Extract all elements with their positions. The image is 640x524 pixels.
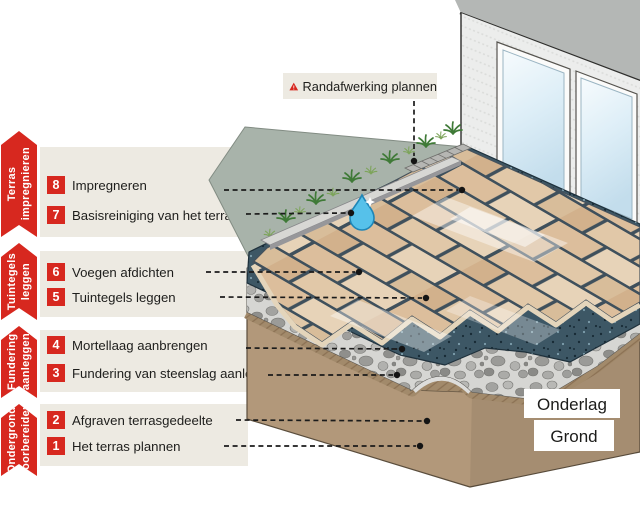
ribbon-label: Terras impregnieren bbox=[5, 147, 33, 220]
house bbox=[455, 0, 640, 226]
grass-tuft-icon bbox=[264, 122, 462, 237]
group-box-tegels bbox=[40, 251, 248, 317]
callout-randafwerking: ! Randafwerking plannen bbox=[283, 73, 437, 99]
step-number-badge: 4 bbox=[47, 336, 65, 354]
ribbon-label: Tuintegels leggen bbox=[5, 253, 33, 310]
step-number-badge: 5 bbox=[47, 288, 65, 306]
gravel-foundation-layer bbox=[247, 268, 640, 400]
step-label: Het terras plannen bbox=[65, 439, 181, 454]
label-box-onderlag bbox=[524, 389, 620, 418]
house-wall bbox=[461, 13, 640, 226]
step-label: Voegen afdichten bbox=[65, 265, 174, 280]
leader-dots bbox=[348, 158, 465, 449]
step-2: 2 Afgraven terrasgedeelte bbox=[47, 411, 213, 429]
step-label: Afgraven terrasgedeelte bbox=[65, 413, 213, 428]
ribbon-tuintegels-leggen: Tuintegels leggen bbox=[1, 243, 37, 320]
mortar-layer bbox=[247, 146, 640, 365]
glass-door-left bbox=[497, 42, 570, 207]
step-label: Basisreiniging van het terras bbox=[65, 208, 238, 223]
infographic-terras-aanleggen: Terras impregnieren Tuintegels leggen Fu… bbox=[0, 0, 640, 524]
step-label: Tuintegels leggen bbox=[65, 290, 176, 305]
warning-icon: ! bbox=[289, 79, 299, 94]
ribbon-terras-impregneren: Terras impregnieren bbox=[1, 131, 37, 237]
ribbon-label: Ondergrond voorbereiden bbox=[5, 403, 33, 476]
step-label: Mortellaag aanbrengen bbox=[65, 338, 208, 353]
step-number-badge: 1 bbox=[47, 437, 65, 455]
ribbon-fundering-aanleggen: Fundering aanleggen bbox=[1, 326, 37, 398]
ribbon-label: Fundering aanleggen bbox=[5, 333, 33, 390]
step-4: 4 Mortellaag aanbrengen bbox=[47, 336, 208, 354]
scene-labels: Onderlag Grond bbox=[524, 389, 620, 451]
edge-profile bbox=[261, 157, 461, 250]
label-box-grond bbox=[534, 420, 614, 451]
svg-text:!: ! bbox=[293, 85, 295, 91]
step-5: 5 Tuintegels leggen bbox=[47, 288, 176, 306]
ribbon-ondergrond-voorbereiden: Ondergrond voorbereiden bbox=[1, 404, 37, 476]
label-grond: Grond bbox=[550, 427, 597, 446]
step-number-badge: 8 bbox=[47, 176, 65, 194]
step-8: 8 Impregneren bbox=[47, 176, 147, 194]
step-number-badge: 7 bbox=[47, 206, 65, 224]
water-drop-icon bbox=[350, 195, 375, 230]
step-number-badge: 6 bbox=[47, 263, 65, 281]
step-label: Fundering van steenslag aanleggen bbox=[65, 366, 282, 381]
glass-door-right bbox=[576, 71, 637, 226]
step-label: Impregneren bbox=[65, 178, 147, 193]
tile-edge-bevel bbox=[253, 265, 640, 345]
step-7: 7 Basisreiniging van het terras bbox=[47, 206, 238, 224]
impregnation-shine bbox=[330, 197, 568, 352]
gravel-arch-face bbox=[413, 377, 471, 391]
callout-label: Randafwerking plannen bbox=[303, 79, 437, 94]
tile-field bbox=[253, 148, 640, 345]
roof bbox=[455, 0, 640, 81]
edge-paver-strip bbox=[405, 144, 471, 172]
step-3: 3 Fundering van steenslag aanleggen bbox=[47, 364, 282, 382]
label-onderlag: Onderlag bbox=[537, 395, 607, 414]
step-1: 1 Het terras plannen bbox=[47, 437, 181, 455]
step-number-badge: 3 bbox=[47, 364, 65, 382]
step-6: 6 Voegen afdichten bbox=[47, 263, 174, 281]
ground-layer bbox=[247, 310, 640, 487]
step-number-badge: 2 bbox=[47, 411, 65, 429]
